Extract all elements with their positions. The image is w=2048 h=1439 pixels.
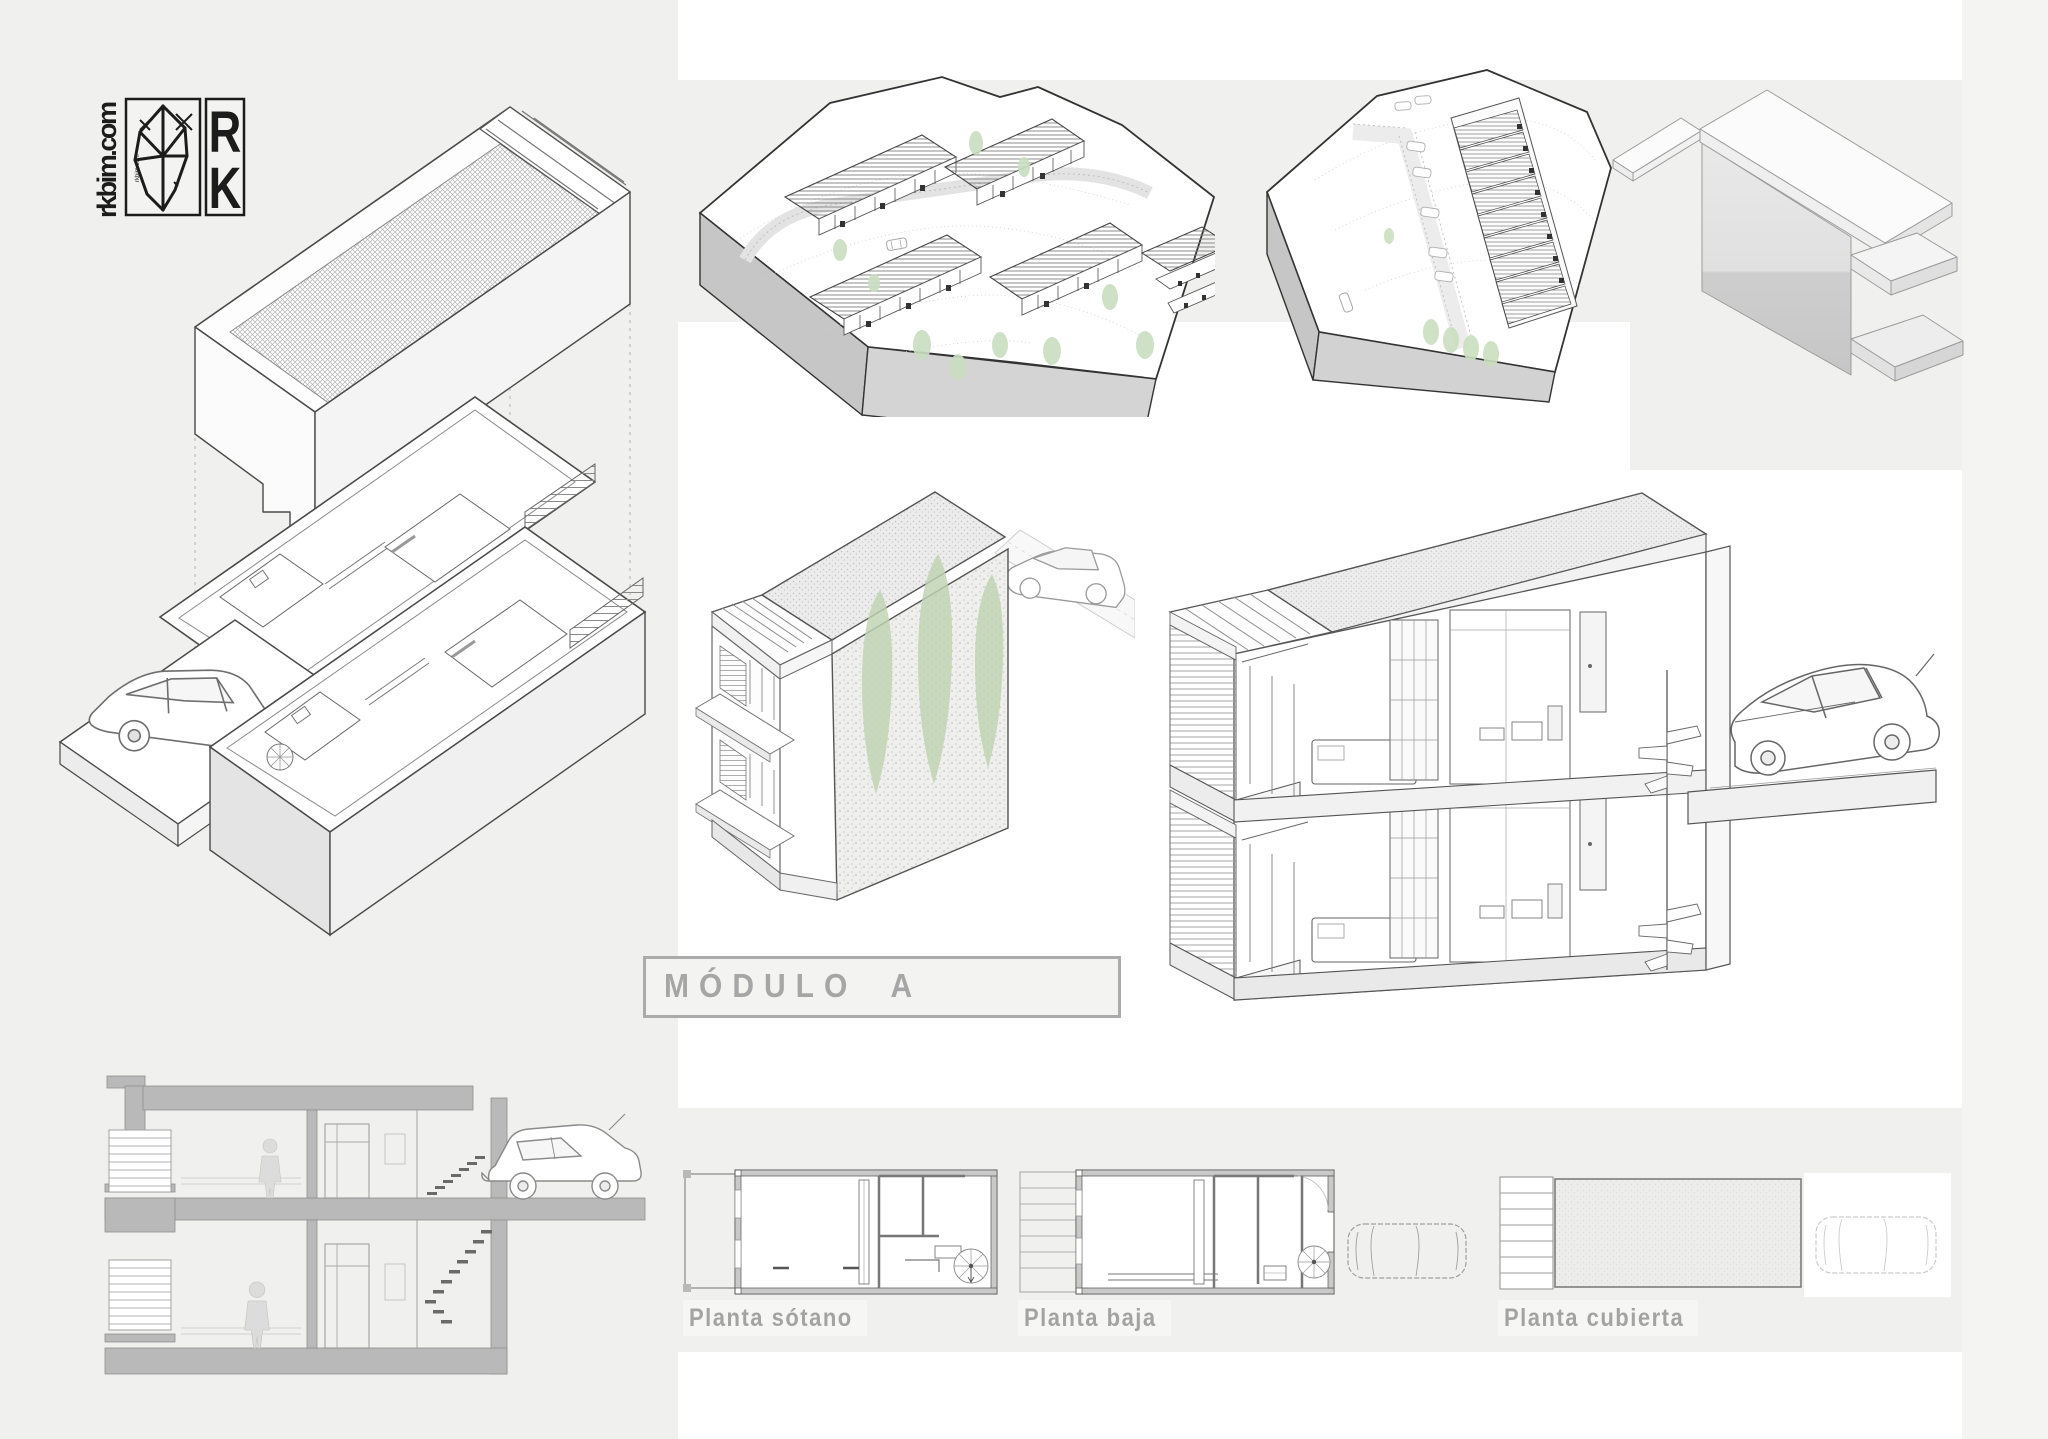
plan-label-baja: Planta baja — [1018, 1300, 1171, 1336]
plan-cubierta-drawing — [1498, 1165, 1953, 1305]
person-icon — [259, 1139, 281, 1198]
plan-baja-drawing — [1018, 1160, 1470, 1305]
building-section-drawing — [85, 1038, 660, 1378]
module-title: MÓDULO A — [646, 968, 922, 1006]
presentation-board: rkbim.com rkbim.com — [0, 0, 2048, 1439]
exploded-axonometric-drawing — [55, 92, 660, 940]
car-icon — [1348, 1224, 1466, 1278]
person-icon — [245, 1282, 270, 1348]
module-exterior-axonometric-drawing — [690, 478, 1135, 910]
site-axonometric-2-drawing — [1255, 40, 1623, 408]
right-wall — [1706, 546, 1730, 970]
plan-sotano-drawing — [683, 1160, 1003, 1305]
roof-louvers — [1500, 1177, 1553, 1289]
plan-label-sotano: Planta sótano — [683, 1300, 867, 1336]
gravel-roof-plan — [1555, 1179, 1801, 1287]
terrain-top — [1267, 70, 1611, 372]
section-poche — [105, 1076, 645, 1374]
spiral-stair — [954, 1249, 988, 1283]
interior-lines — [181, 1110, 417, 1348]
module-title-box: MÓDULO A — [643, 956, 1121, 1018]
deck — [1020, 1172, 1076, 1292]
car-icon — [1731, 654, 1939, 775]
massing-diagram-drawing — [1605, 85, 1997, 403]
plan-walls — [1076, 1170, 1334, 1294]
plan-label-cubierta: Planta cubierta — [1498, 1300, 1698, 1336]
patio — [683, 1170, 735, 1292]
stair-steps — [425, 1156, 492, 1324]
car-card — [1804, 1173, 1951, 1297]
site-axonometric-1-drawing — [690, 45, 1215, 417]
module-section-axonometric-drawing — [1150, 470, 1940, 1005]
spiral-stair — [1298, 1246, 1330, 1278]
